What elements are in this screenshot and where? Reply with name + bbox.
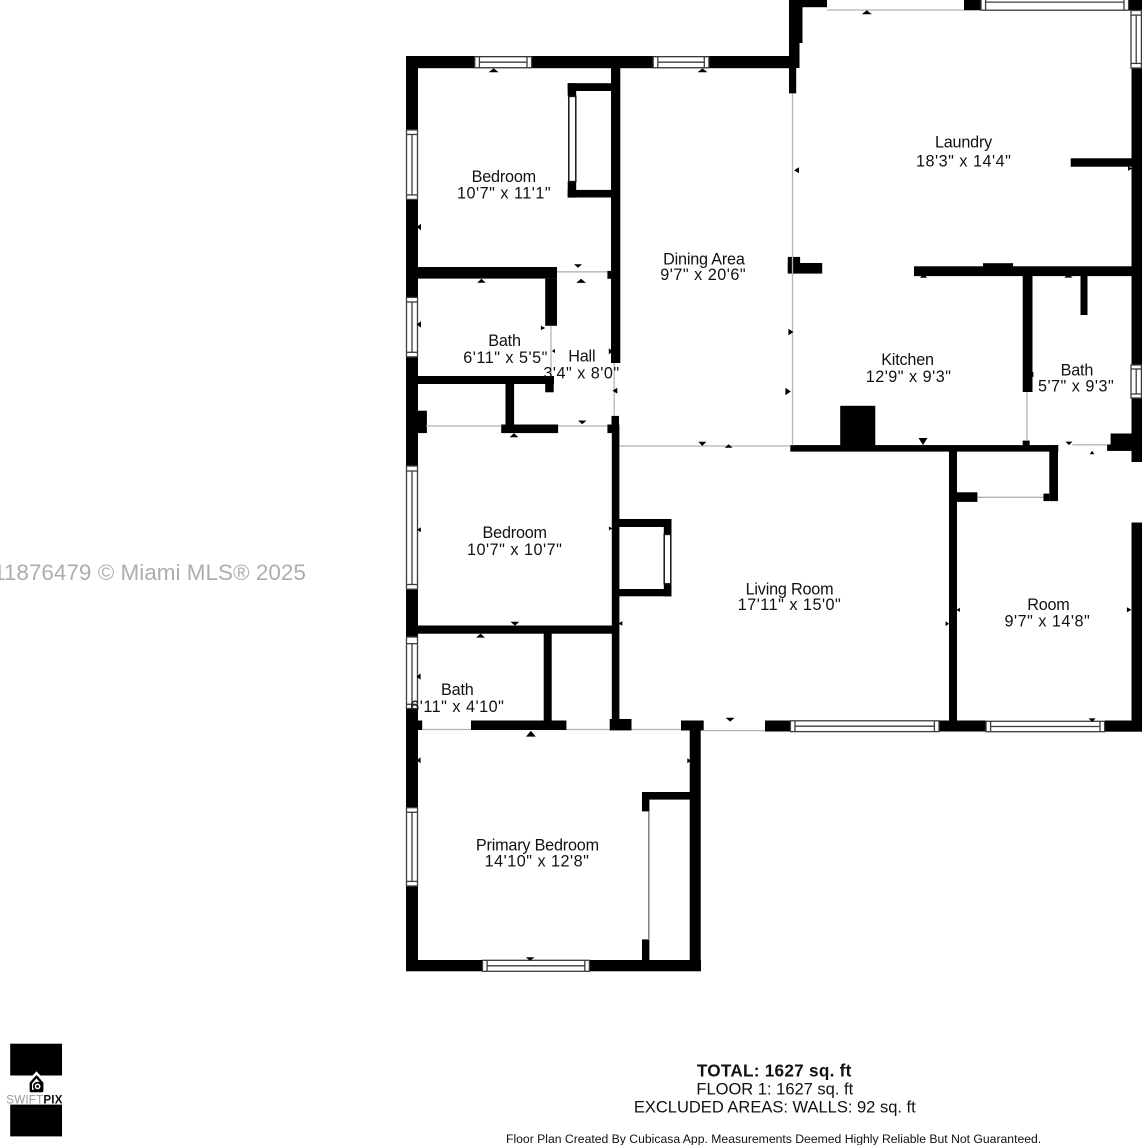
svg-text:Bedroom: Bedroom [483, 524, 547, 542]
svg-text:6'11" x 5'5": 6'11" x 5'5" [463, 349, 548, 367]
svg-text:14'10" x 12'8": 14'10" x 12'8" [485, 852, 590, 870]
svg-text:9'7" x 14'8": 9'7" x 14'8" [1005, 613, 1091, 631]
svg-text:EXCLUDED AREAS: WALLS: 92 sq.: EXCLUDED AREAS: WALLS: 92 sq. ft [634, 1099, 916, 1117]
svg-text:12'9" x 9'3": 12'9" x 9'3" [866, 368, 952, 386]
svg-text:Kitchen: Kitchen [881, 351, 934, 369]
svg-text:10'7" x 10'7": 10'7" x 10'7" [467, 541, 562, 559]
svg-text:Laundry: Laundry [935, 134, 993, 152]
svg-text:9'7" x 20'6": 9'7" x 20'6" [660, 266, 746, 284]
svg-text:SWIFTPIX: SWIFTPIX [6, 1093, 62, 1106]
svg-text:11876479 © Miami MLS® 2025: 11876479 © Miami MLS® 2025 [0, 560, 306, 585]
svg-text:Bath: Bath [488, 332, 521, 350]
svg-text:17'11" x 15'0": 17'11" x 15'0" [738, 596, 842, 614]
svg-text:Floor Plan Created By Cubicasa: Floor Plan Created By Cubicasa App. Meas… [506, 1132, 1041, 1145]
svg-text:3'4" x 8'0": 3'4" x 8'0" [543, 364, 619, 382]
svg-text:Hall: Hall [568, 347, 595, 365]
svg-text:Bath: Bath [441, 681, 474, 699]
svg-text:10'7" x 11'1": 10'7" x 11'1" [457, 185, 551, 203]
svg-text:Bedroom: Bedroom [472, 168, 536, 186]
svg-text:Room: Room [1027, 596, 1069, 614]
svg-text:TOTAL: 1627 sq. ft: TOTAL: 1627 sq. ft [697, 1061, 852, 1081]
svg-text:6'11" x 4'10": 6'11" x 4'10" [410, 698, 504, 716]
svg-text:FLOOR 1: 1627 sq. ft: FLOOR 1: 1627 sq. ft [696, 1081, 853, 1099]
svg-text:18'3" x 14'4": 18'3" x 14'4" [916, 152, 1011, 170]
svg-text:5'7" x 9'3": 5'7" x 9'3" [1038, 377, 1114, 395]
